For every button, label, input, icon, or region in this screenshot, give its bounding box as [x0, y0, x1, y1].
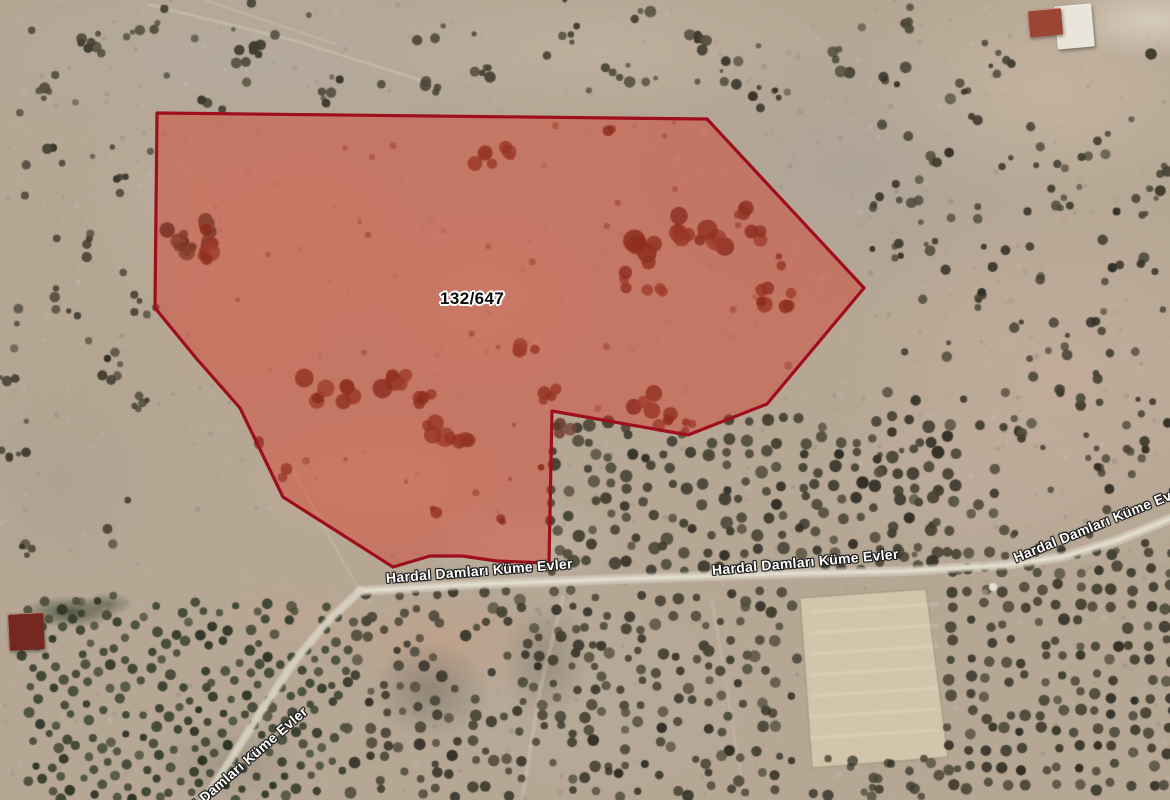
satellite-map-view: 132/647 Hardal Damları Küme EvlerHardal … [0, 0, 1170, 800]
parcel-boundary-polygon[interactable] [155, 113, 864, 567]
map-overlay-layer [0, 0, 1170, 800]
